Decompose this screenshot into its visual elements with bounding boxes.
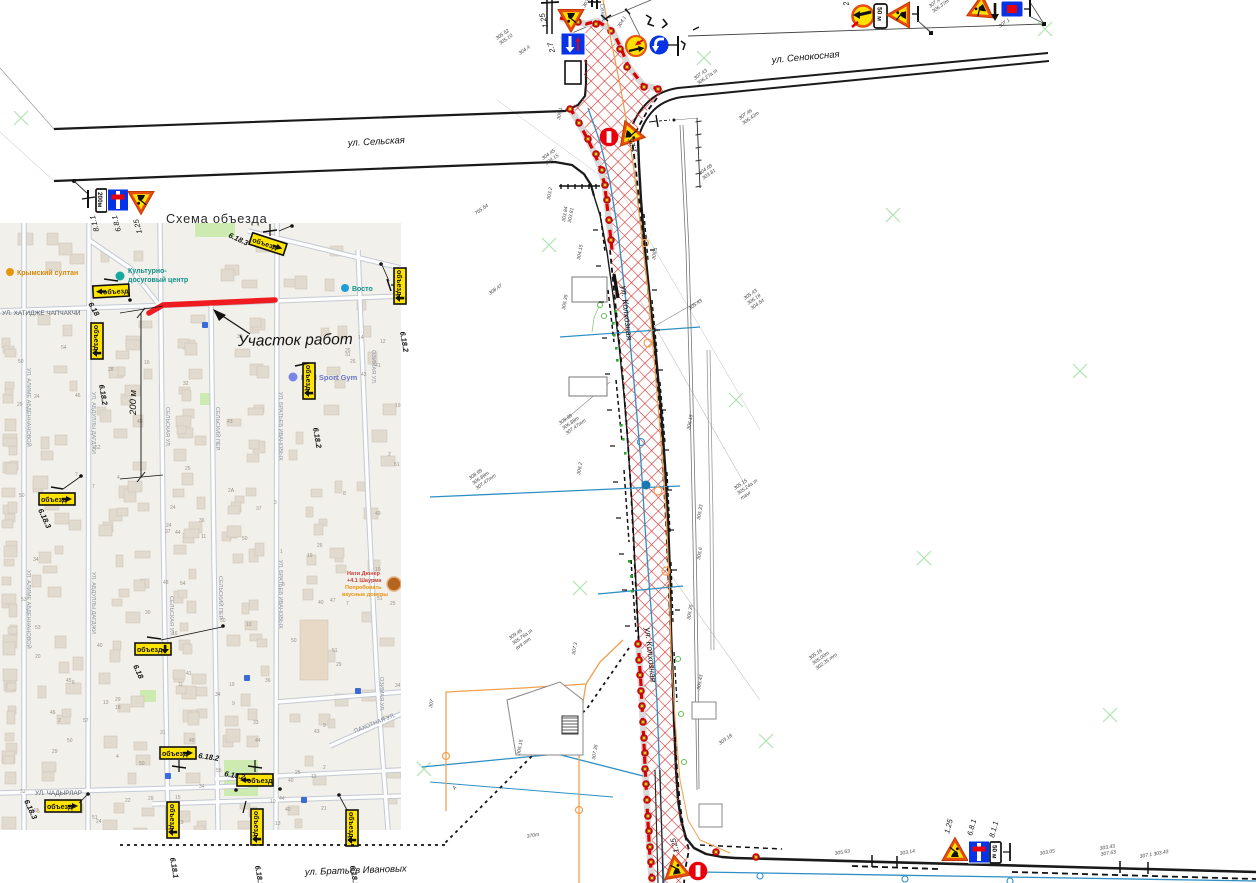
- svg-text:45: 45: [137, 419, 143, 425]
- svg-text:объезд: объезд: [103, 287, 129, 296]
- svg-text:9: 9: [232, 701, 235, 707]
- svg-text:объезд: объезд: [247, 777, 273, 785]
- svg-text:53: 53: [21, 597, 27, 603]
- svg-text:20: 20: [35, 654, 41, 660]
- svg-text:29: 29: [115, 697, 121, 703]
- svg-text:объезд: объезд: [168, 804, 176, 830]
- svg-text:44: 44: [279, 796, 285, 802]
- svg-text:11: 11: [178, 682, 183, 688]
- svg-text:Восто: Восто: [352, 286, 373, 293]
- svg-text:34: 34: [199, 784, 205, 790]
- svg-text:досуговый центр: досуговый центр: [128, 276, 188, 284]
- svg-text:54: 54: [61, 345, 67, 351]
- svg-text:200м: 200м: [96, 192, 103, 208]
- svg-text:14: 14: [358, 335, 364, 341]
- svg-text:37: 37: [165, 529, 171, 535]
- svg-text:СЕЛЬСКИЙ ПЕР.: СЕЛЬСКИЙ ПЕР.: [214, 407, 222, 451]
- svg-text:41: 41: [186, 671, 192, 677]
- svg-text:37: 37: [256, 506, 262, 512]
- svg-text:10: 10: [270, 799, 276, 805]
- svg-text:57: 57: [83, 718, 89, 724]
- svg-text:6: 6: [72, 680, 75, 686]
- svg-text:3: 3: [274, 500, 277, 506]
- svg-text:30: 30: [145, 610, 151, 616]
- svg-text:29: 29: [52, 749, 58, 755]
- svg-text:41: 41: [375, 363, 381, 369]
- svg-text:31: 31: [160, 730, 166, 736]
- svg-text:объезд: объезд: [252, 811, 260, 837]
- svg-text:40: 40: [285, 807, 291, 813]
- svg-text:47: 47: [330, 598, 336, 604]
- svg-text:СЕЛЬСКИЙ ПЕР.: СЕЛЬСКИЙ ПЕР.: [217, 576, 225, 620]
- svg-text:50: 50: [67, 738, 73, 744]
- svg-text:Нати Дюнер: Нати Дюнер: [347, 571, 381, 577]
- svg-text:40: 40: [318, 600, 324, 606]
- svg-text:2А: 2А: [228, 488, 235, 494]
- svg-text:10: 10: [246, 622, 252, 628]
- svg-text:7: 7: [92, 484, 95, 490]
- svg-text:19: 19: [229, 682, 235, 688]
- svg-text:50 м: 50 м: [876, 7, 883, 21]
- svg-text:48: 48: [163, 580, 169, 586]
- svg-text:2: 2: [58, 718, 61, 724]
- svg-text:УЛ. ЧАДЫРЛАР: УЛ. ЧАДЫРЛАР: [35, 790, 82, 797]
- svg-text:УЛ. АБДУЛЛЫ ДАГДЖИ: УЛ. АБДУЛЛЫ ДАГДЖИ: [90, 572, 96, 634]
- svg-text:34: 34: [395, 683, 401, 689]
- svg-text:16: 16: [172, 631, 178, 637]
- svg-text:18: 18: [115, 705, 121, 711]
- svg-text:СЕЛЬСКАЯ УЛ.: СЕЛЬСКАЯ УЛ.: [164, 407, 170, 448]
- svg-text:объезд: объезд: [304, 365, 312, 391]
- svg-text:50: 50: [19, 493, 25, 499]
- svg-text:36: 36: [199, 518, 205, 524]
- svg-text:24: 24: [170, 505, 176, 511]
- svg-text:36: 36: [265, 678, 271, 684]
- svg-text:44: 44: [255, 738, 261, 744]
- svg-text:40: 40: [97, 643, 103, 649]
- svg-text:33: 33: [253, 720, 259, 726]
- svg-text:50: 50: [139, 761, 145, 767]
- svg-text:2: 2: [323, 765, 326, 771]
- svg-text:46: 46: [50, 710, 56, 716]
- svg-text:50: 50: [291, 638, 297, 644]
- svg-text:8: 8: [282, 582, 285, 588]
- svg-text:21: 21: [321, 806, 327, 812]
- svg-text:13: 13: [275, 821, 281, 827]
- svg-text:7: 7: [346, 601, 349, 607]
- svg-text:29: 29: [336, 662, 342, 668]
- svg-text:26: 26: [350, 359, 356, 365]
- svg-text:Культурно-: Культурно-: [128, 268, 167, 275]
- svg-text:40: 40: [288, 778, 294, 784]
- svg-text:13: 13: [311, 774, 317, 780]
- svg-text:22: 22: [125, 798, 131, 804]
- svg-text:46: 46: [75, 393, 81, 399]
- svg-text:34: 34: [215, 692, 221, 698]
- svg-text:43: 43: [314, 729, 320, 735]
- svg-text:52: 52: [95, 445, 101, 451]
- svg-text:50: 50: [242, 536, 248, 542]
- svg-text:43: 43: [227, 419, 233, 425]
- svg-text:19: 19: [307, 553, 313, 559]
- svg-text:24: 24: [34, 394, 40, 400]
- svg-text:объезд: объезд: [395, 270, 403, 296]
- svg-text:49: 49: [189, 738, 195, 744]
- svg-text:51: 51: [92, 815, 98, 821]
- svg-text:1: 1: [280, 549, 283, 555]
- svg-text:51: 51: [394, 462, 400, 468]
- svg-text:34: 34: [33, 557, 39, 563]
- svg-text:11: 11: [201, 534, 206, 540]
- svg-text:26: 26: [317, 543, 323, 549]
- svg-text:25: 25: [345, 348, 351, 354]
- svg-text:51: 51: [332, 648, 338, 654]
- svg-text:25: 25: [295, 770, 301, 776]
- svg-text:4: 4: [117, 475, 120, 481]
- svg-text:19: 19: [395, 403, 401, 409]
- svg-text:объезд: объезд: [92, 325, 100, 351]
- svg-text:Участок работ: Участок работ: [237, 331, 353, 350]
- svg-text:33: 33: [20, 789, 26, 795]
- svg-text:УЛ. АЛИМЕ АБДЕННАНОВОЙ: УЛ. АЛИМЕ АБДЕННАНОВОЙ: [25, 570, 33, 649]
- svg-text:12: 12: [380, 339, 386, 345]
- svg-text:29: 29: [148, 796, 154, 802]
- svg-text:9: 9: [323, 723, 326, 729]
- svg-text:50: 50: [18, 359, 24, 365]
- svg-text:8: 8: [343, 491, 346, 497]
- svg-text:16: 16: [144, 360, 150, 366]
- svg-text:объезд: объезд: [137, 646, 163, 654]
- svg-text:49: 49: [375, 511, 381, 517]
- svg-text:28: 28: [108, 367, 114, 373]
- svg-text:15: 15: [175, 795, 181, 801]
- svg-text:200 м: 200 м: [128, 390, 139, 416]
- svg-text:УЛ. ХАТИДЖЕ ЧАПЧАКЧИ: УЛ. ХАТИДЖЕ ЧАПЧАКЧИ: [2, 310, 81, 317]
- svg-text:Схема объезда: Схема объезда: [166, 211, 268, 226]
- svg-text:4: 4: [116, 754, 119, 760]
- svg-text:45: 45: [66, 678, 72, 684]
- svg-text:54: 54: [180, 581, 186, 587]
- svg-text:вкусные донеры: вкусные донеры: [342, 592, 388, 598]
- svg-text:43: 43: [361, 372, 367, 378]
- svg-text:53: 53: [35, 625, 41, 631]
- svg-text:44: 44: [175, 530, 181, 536]
- svg-text:Крымский султан: Крымский султан: [17, 269, 78, 277]
- svg-text:2: 2: [388, 452, 391, 458]
- svg-text:50: 50: [220, 618, 226, 624]
- svg-text:50 м: 50 м: [991, 845, 998, 859]
- svg-text:25: 25: [185, 466, 191, 472]
- svg-text:объезд: объезд: [347, 812, 355, 838]
- svg-text:13: 13: [103, 700, 109, 706]
- svg-text:55: 55: [216, 768, 222, 774]
- svg-text:29: 29: [17, 402, 23, 408]
- svg-text:25: 25: [390, 601, 396, 607]
- svg-text:УЛ. БРАТЬЕВ ИВАНОВЫХ: УЛ. БРАТЬЕВ ИВАНОВЫХ: [277, 560, 283, 629]
- svg-text:УЛ. БРАТЬЕВ ИВАНОВЫХ: УЛ. БРАТЬЕВ ИВАНОВЫХ: [277, 392, 283, 461]
- svg-text:32: 32: [183, 381, 189, 387]
- svg-text:Попробовать: Попробовать: [345, 584, 382, 591]
- svg-text:7: 7: [75, 472, 78, 478]
- svg-text:УЛ. АЛИМЕ АБДЕННАНОВОЙ: УЛ. АЛИМЕ АБДЕННАНОВОЙ: [25, 368, 33, 447]
- svg-text:ОЗИМАЯ УЛ.: ОЗИМАЯ УЛ.: [378, 677, 384, 712]
- svg-text:+4.1 Шаурма: +4.1 Шаурма: [347, 578, 382, 584]
